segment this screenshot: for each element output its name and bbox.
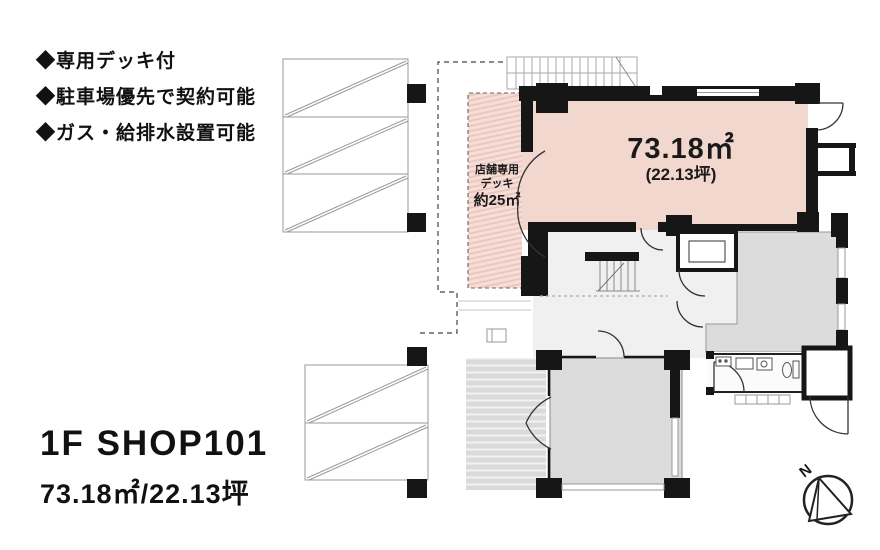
gray-deck-bottom [466,358,546,490]
deck-label-3: 約25㎡ [474,191,521,209]
deck-area: 店舗専用 デッキ 約25㎡ [468,93,522,288]
feature-item-1: ◆専用デッキ付 [36,44,256,80]
compass: N [796,461,852,524]
gray-room-bottom [550,358,682,490]
porch-steps [458,301,531,342]
feature-list: ◆専用デッキ付 ◆駐車場優先で契約可能 ◆ガス・給排水設置可能 [36,44,256,152]
main-tsubo-label: (22.13坪) [646,165,717,184]
main-shop-area: 73.18㎡ (22.13坪) [522,96,808,230]
main-area-label: 73.18㎡ [627,131,735,165]
parking-stalls-bottom [305,347,428,498]
right-exterior-door [818,103,843,130]
deck-label-2: デッキ [481,176,514,190]
compass-north-label: N [796,461,815,481]
closet-door [810,396,848,434]
deck-label-1: 店舗専用 [475,162,519,176]
elevator [678,232,736,270]
unit-name: 1F SHOP101 [40,424,268,464]
unit-title: 1F SHOP101 73.18㎡/22.13坪 [40,424,268,511]
floorplan-page: ◆専用デッキ付 ◆駐車場優先で契約可能 ◆ガス・給排水設置可能 1F SHOP1… [0,0,880,550]
feature-item-3: ◆ガス・給排水設置可能 [36,116,256,152]
unit-area: 73.18㎡/22.13坪 [40,472,268,511]
feature-item-2: ◆駐車場優先で契約可能 [36,80,256,116]
exterior-stairs [507,57,637,89]
parking-stalls-top [283,59,426,232]
